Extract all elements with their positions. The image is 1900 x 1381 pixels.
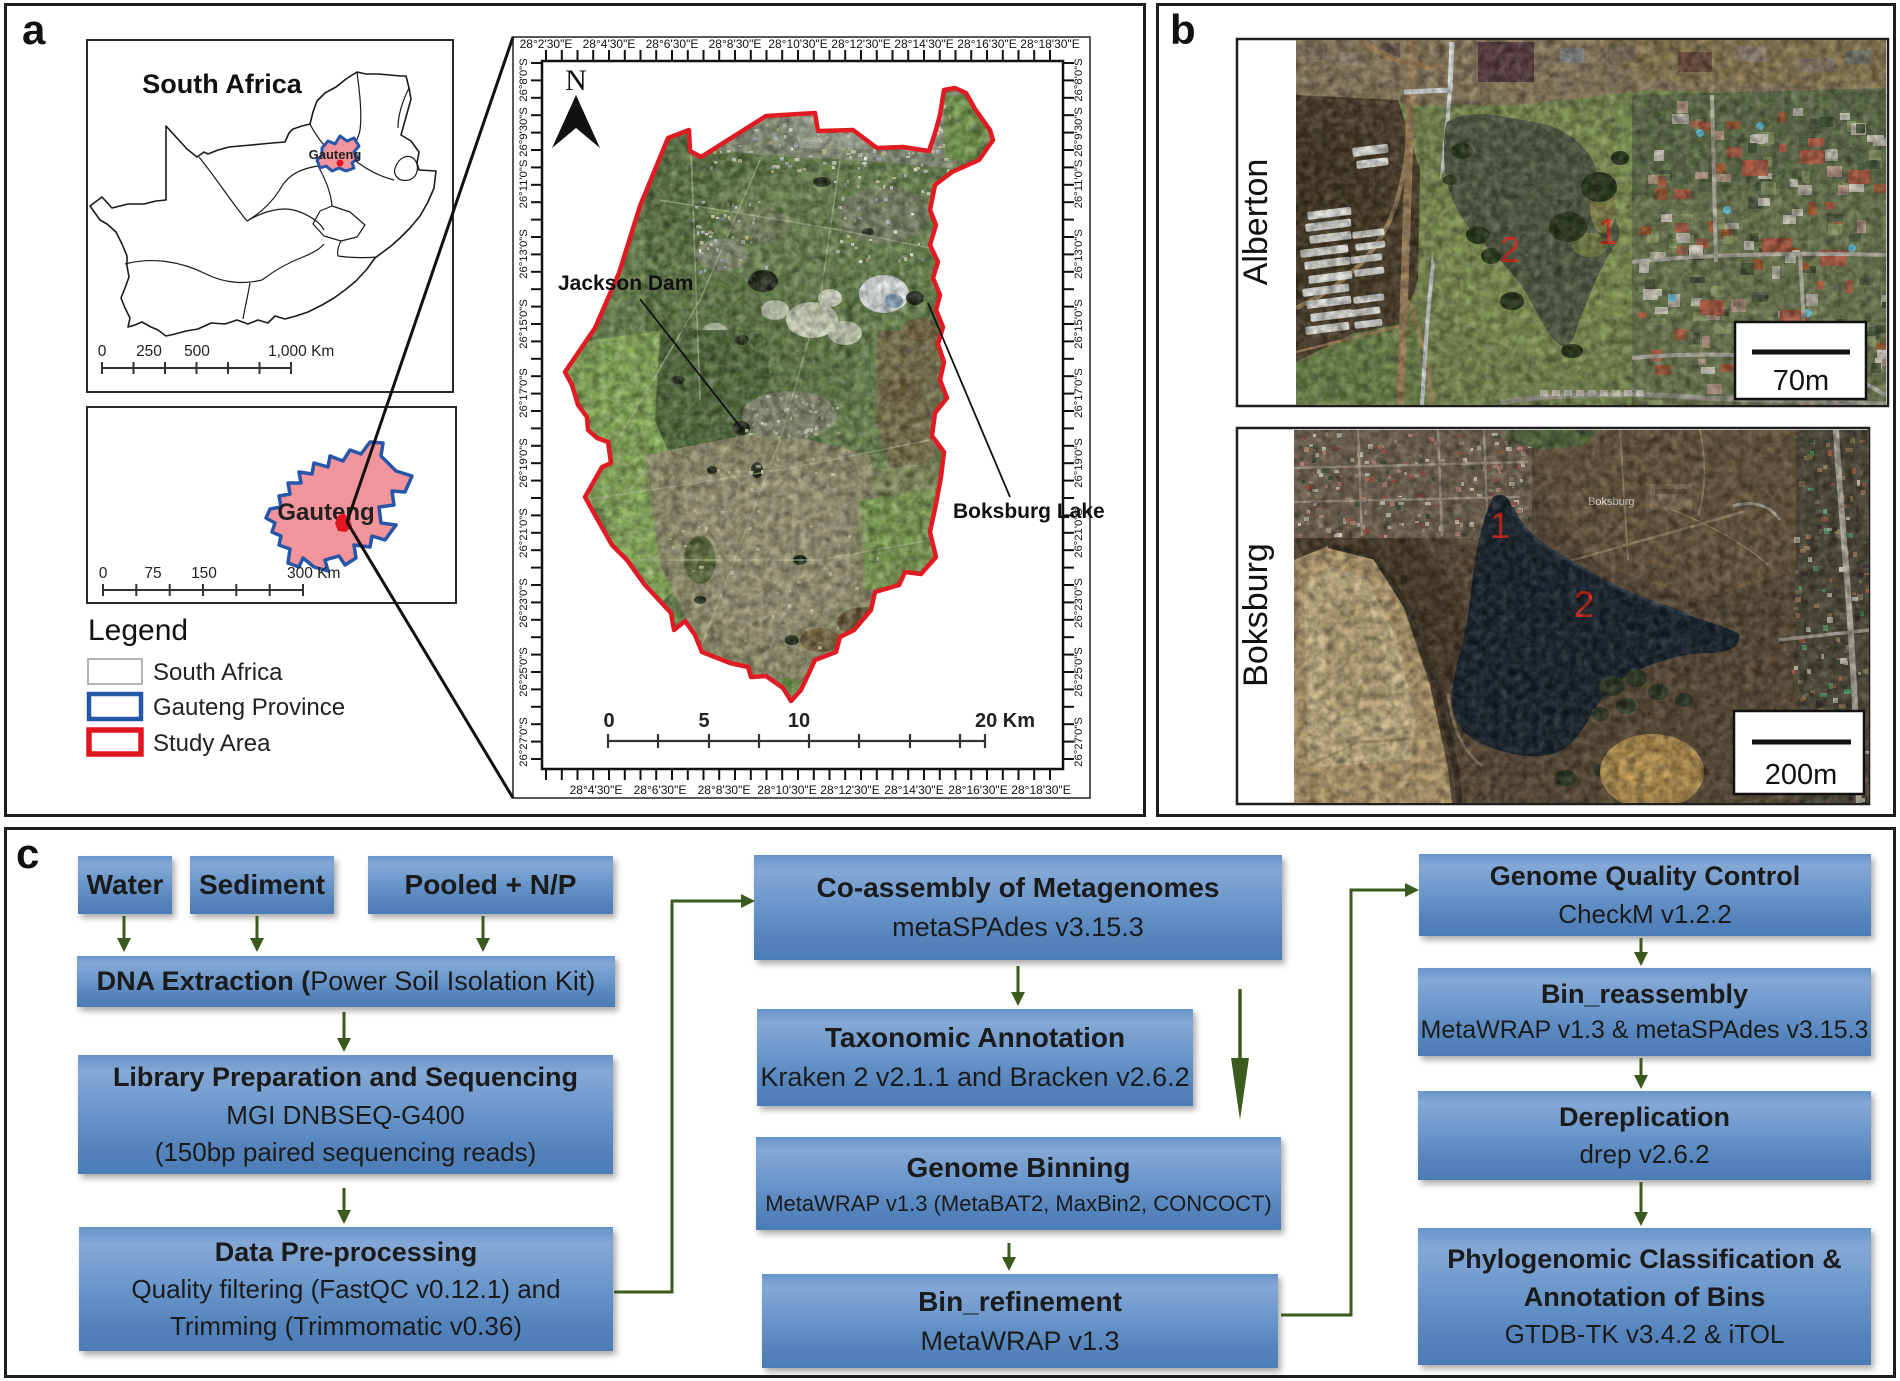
svg-text:South Africa: South Africa: [153, 659, 283, 686]
svg-text:26°21'0"S: 26°21'0"S: [518, 508, 530, 558]
svg-text:300 Km: 300 Km: [287, 565, 340, 582]
svg-text:70m: 70m: [1773, 365, 1829, 397]
svg-text:0: 0: [98, 343, 107, 360]
svg-text:28°18'30"E: 28°18'30"E: [1020, 37, 1079, 51]
svg-text:26°19'0"S: 26°19'0"S: [518, 438, 530, 488]
svg-text:28°16'30"E: 28°16'30"E: [948, 783, 1007, 797]
svg-text:0: 0: [99, 565, 108, 582]
svg-text:28°14'30"E: 28°14'30"E: [894, 37, 953, 51]
svg-text:Boksburg: Boksburg: [1237, 543, 1275, 687]
svg-text:26°11'0"S: 26°11'0"S: [1073, 159, 1085, 208]
svg-text:26°13'0"S: 26°13'0"S: [518, 229, 530, 279]
svg-text:1,000 Km: 1,000 Km: [268, 343, 334, 360]
svg-text:28°6'30"E: 28°6'30"E: [646, 37, 699, 51]
svg-text:10: 10: [788, 710, 810, 732]
svg-text:26°27'0"S: 26°27'0"S: [1073, 717, 1085, 767]
svg-text:26°25'0"S: 26°25'0"S: [518, 647, 530, 697]
svg-text:26°25'0"S: 26°25'0"S: [1073, 647, 1085, 697]
svg-text:Gauteng: Gauteng: [309, 147, 362, 162]
svg-text:26°11'0"S: 26°11'0"S: [518, 159, 530, 208]
svg-text:26°17'0"S: 26°17'0"S: [518, 368, 530, 418]
svg-text:28°4'30"E: 28°4'30"E: [583, 37, 636, 51]
svg-text:28°6'30"E: 28°6'30"E: [634, 783, 687, 797]
svg-text:26°15'0"S: 26°15'0"S: [1073, 299, 1085, 349]
svg-text:26°23'0"S: 26°23'0"S: [1073, 578, 1085, 628]
svg-text:28°8'30"E: 28°8'30"E: [698, 783, 751, 797]
svg-text:Alberton: Alberton: [1237, 159, 1275, 286]
svg-text:Study Area: Study Area: [153, 730, 271, 757]
svg-text:5: 5: [698, 710, 709, 732]
svg-text:South Africa: South Africa: [142, 69, 302, 99]
svg-text:N: N: [565, 64, 587, 97]
svg-text:150: 150: [191, 565, 217, 582]
svg-text:28°12'30"E: 28°12'30"E: [820, 783, 879, 797]
svg-text:28°12'30"E: 28°12'30"E: [831, 37, 890, 51]
svg-text:Legend: Legend: [88, 614, 188, 647]
svg-text:Boksburg Lake: Boksburg Lake: [953, 500, 1105, 523]
svg-text:200m: 200m: [1765, 759, 1838, 791]
svg-text:26°19'0"S: 26°19'0"S: [1073, 438, 1085, 488]
svg-text:28°10'30"E: 28°10'30"E: [757, 783, 816, 797]
svg-text:28°8'30"E: 28°8'30"E: [709, 37, 762, 51]
svg-text:26°17'0"S: 26°17'0"S: [1073, 368, 1085, 418]
svg-text:250: 250: [136, 343, 162, 360]
svg-text:28°16'30"E: 28°16'30"E: [957, 37, 1016, 51]
svg-text:Jackson Dam: Jackson Dam: [558, 272, 693, 295]
svg-text:20 Km: 20 Km: [975, 710, 1035, 732]
svg-text:26°9'30"S: 26°9'30"S: [1073, 107, 1085, 157]
svg-text:28°2'30"E: 28°2'30"E: [520, 37, 573, 51]
svg-text:26°8'0"S: 26°8'0"S: [1073, 58, 1085, 102]
svg-text:26°27'0"S: 26°27'0"S: [518, 717, 530, 767]
svg-text:Gauteng: Gauteng: [277, 499, 374, 526]
svg-text:28°14'30"E: 28°14'30"E: [884, 783, 943, 797]
svg-text:26°15'0"S: 26°15'0"S: [518, 299, 530, 349]
svg-text:28°10'30"E: 28°10'30"E: [768, 37, 827, 51]
svg-text:26°8'0"S: 26°8'0"S: [518, 58, 530, 102]
svg-text:26°9'30"S: 26°9'30"S: [518, 107, 530, 157]
svg-text:Gauteng Province: Gauteng Province: [153, 694, 345, 721]
svg-text:75: 75: [144, 565, 161, 582]
svg-text:28°4'30"E: 28°4'30"E: [570, 783, 623, 797]
svg-text:0: 0: [603, 710, 614, 732]
svg-text:26°23'0"S: 26°23'0"S: [518, 578, 530, 628]
svg-text:500: 500: [184, 343, 210, 360]
svg-text:28°18'30"E: 28°18'30"E: [1011, 783, 1070, 797]
svg-text:26°13'0"S: 26°13'0"S: [1073, 229, 1085, 279]
